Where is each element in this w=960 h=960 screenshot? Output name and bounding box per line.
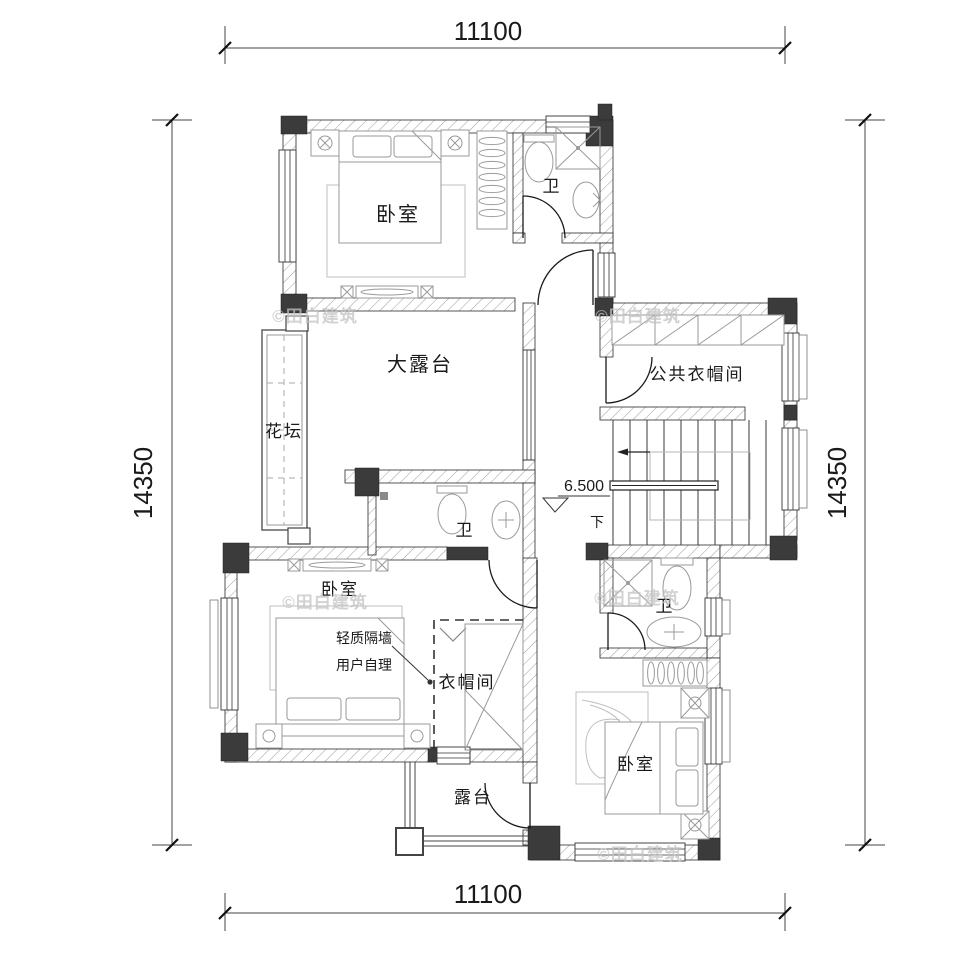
watermark: ©田白建筑 — [594, 588, 680, 608]
toilet — [524, 135, 554, 182]
stair-direction-label: 下 — [590, 514, 604, 530]
nightstand — [441, 130, 469, 156]
nightstand — [311, 130, 339, 156]
note-partition-1: 轻质隔墙 — [336, 630, 392, 646]
wardrobe-hangers — [477, 131, 507, 229]
wardrobe-hangers — [643, 660, 707, 686]
window-hall-right — [598, 253, 615, 297]
elevation-marker: 6.500 — [543, 478, 610, 512]
window-stair-right — [782, 428, 799, 510]
dimension-bottom: 11100 — [219, 879, 791, 931]
label-public-cloakroom: 公共衣帽间 — [650, 365, 745, 384]
terrace-railing — [396, 762, 528, 855]
label-terrace: 露台 — [454, 788, 492, 807]
door-hall-top — [538, 250, 593, 305]
nightstand — [256, 724, 282, 748]
floor-plan-drawing: 11100 11100 14350 14350 — [0, 0, 960, 960]
elevation-triangle — [543, 498, 568, 512]
dimension-top: 11100 — [219, 16, 791, 64]
bed — [339, 131, 441, 243]
watermark: ©田白建筑 — [595, 306, 681, 326]
window-cloakroom-right — [782, 333, 799, 401]
watermark: ©田白建筑 — [597, 844, 683, 864]
bedroom3-furniture — [576, 660, 709, 839]
staircase: 下 — [590, 420, 766, 545]
nightstand — [681, 688, 709, 718]
dimension-right: 14350 — [822, 114, 885, 851]
window-bath3-right — [705, 598, 722, 636]
window-sill — [722, 600, 730, 634]
window-bedroom1-left — [279, 150, 296, 262]
note-partition-2: 用户自理 — [336, 657, 392, 673]
tv-console — [341, 286, 433, 298]
window-terrace-hall — [523, 350, 535, 460]
stair-handrail — [610, 481, 718, 490]
railing-post — [396, 828, 423, 855]
tv-console — [288, 559, 388, 571]
bath2-fixtures — [380, 486, 520, 539]
floor-drain — [380, 492, 388, 500]
sink — [647, 617, 701, 647]
label-cloakroom: 衣帽间 — [439, 673, 496, 692]
elevation-value: 6.500 — [564, 478, 604, 495]
window-sill — [210, 600, 218, 708]
dim-top-label: 11100 — [454, 16, 522, 46]
dim-bottom-label: 11100 — [454, 879, 522, 909]
sink — [492, 501, 520, 539]
label-bedroom1: 卧室 — [376, 203, 420, 226]
label-bath2: 卫 — [456, 521, 475, 540]
dimension-left: 14350 — [128, 114, 192, 851]
nightstand — [404, 724, 430, 748]
door-bath3 — [608, 613, 645, 650]
window-bath1-top — [546, 116, 590, 133]
stair-direction-arrow — [617, 449, 650, 456]
label-bedroom3: 卧室 — [617, 755, 655, 774]
label-flower-bed: 花坛 — [265, 422, 303, 441]
door-bath1 — [523, 196, 565, 238]
label-large-terrace: 大露台 — [387, 353, 453, 376]
dim-left-label: 14350 — [128, 447, 158, 519]
nightstand — [681, 811, 709, 839]
fold-door-symbol — [440, 628, 466, 641]
watermark: ©田白建筑 — [272, 306, 358, 326]
window-sill — [722, 690, 730, 762]
watermark: ©田白建筑 — [282, 592, 368, 612]
label-bath1: 卫 — [543, 177, 562, 196]
window-sill — [799, 430, 807, 508]
floor-plan-page: 11100 11100 14350 14350 — [0, 0, 960, 960]
window-sill — [799, 335, 807, 399]
door-public-cloakroom — [606, 357, 652, 403]
sink — [573, 182, 600, 218]
dim-right-label: 14350 — [822, 447, 852, 519]
window-bedroom2-left — [221, 598, 238, 710]
